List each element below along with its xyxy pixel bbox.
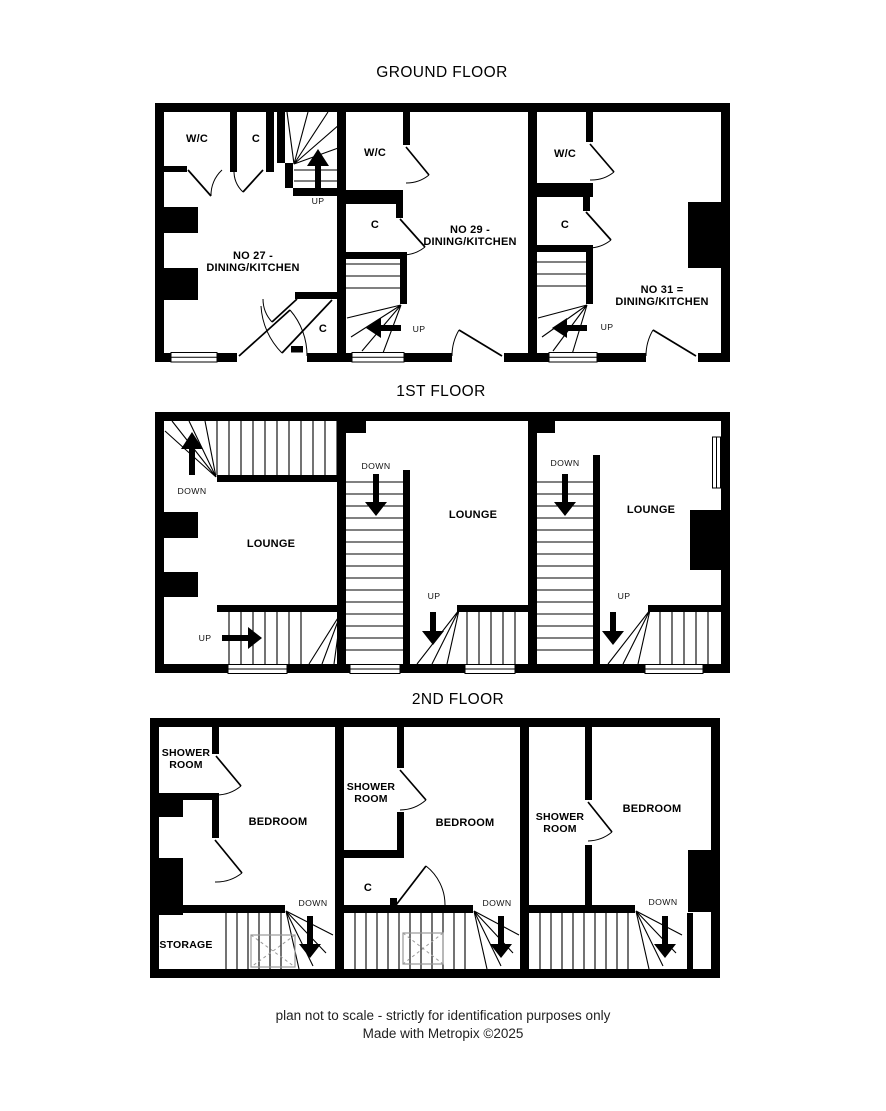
stair-label-up: UP — [601, 322, 614, 332]
room-label-shower: SHOWER — [347, 781, 396, 793]
room-label-shower-2: ROOM — [169, 759, 203, 771]
room-label-shower-2: ROOM — [543, 823, 577, 835]
stair-label-down: DOWN — [361, 461, 390, 471]
room-label-storage: STORAGE — [159, 939, 212, 951]
ground-floor-plan: W/C C UP NO 27 - DINING/KITCHEN C W/C C … — [155, 103, 730, 362]
room-label-wc: W/C — [186, 133, 208, 145]
stair-label-up: UP — [618, 591, 631, 601]
room-label-no27: NO 27 - — [233, 250, 273, 262]
disclaimer-text: plan not to scale - strictly for identif… — [276, 1008, 611, 1023]
second-unit31-stairs — [540, 911, 682, 969]
room-label-no29-2: DINING/KITCHEN — [423, 236, 516, 248]
room-label-shower: SHOWER — [536, 811, 585, 823]
room-label-no31-2: DINING/KITCHEN — [615, 296, 708, 308]
up-arrow — [307, 149, 329, 188]
stair-label-up: UP — [413, 324, 426, 334]
room-label-closet: C — [364, 882, 372, 894]
stair-label-down: DOWN — [298, 898, 327, 908]
room-label-wc: W/C — [364, 147, 386, 159]
stair-label-down: DOWN — [550, 458, 579, 468]
room-label-no31: NO 31 = — [641, 284, 684, 296]
room-label-closet: C — [319, 323, 327, 335]
ground-unit29-stairs — [346, 264, 401, 361]
second-labels: SHOWER ROOM BEDROOM STORAGE DOWN SHOWER … — [159, 747, 681, 951]
ground-unit31-stairs — [537, 262, 587, 361]
room-label-lounge: LOUNGE — [247, 538, 295, 550]
stair-label-down: DOWN — [482, 898, 511, 908]
up-arrow — [422, 612, 444, 645]
up-arrow — [602, 612, 624, 645]
credit-text: Made with Metropix ©2025 — [363, 1026, 524, 1041]
first-windows — [228, 437, 721, 674]
up-arrow — [181, 432, 203, 475]
stair-label-up: UP — [428, 591, 441, 601]
ground-floor-title: GROUND FLOOR — [376, 64, 507, 81]
room-label-lounge: LOUNGE — [627, 504, 675, 516]
room-label-bedroom: BEDROOM — [249, 816, 308, 828]
stair-label-down: DOWN — [648, 897, 677, 907]
room-label-closet: C — [561, 219, 569, 231]
second-floor-plan: SHOWER ROOM BEDROOM STORAGE DOWN SHOWER … — [150, 718, 720, 978]
up-arrow — [222, 627, 262, 649]
first-floor-plan: DOWN LOUNGE UP DOWN LOUNGE UP DOWN LOUNG… — [155, 412, 730, 674]
room-label-no29: NO 29 - — [450, 224, 490, 236]
up-arrow — [366, 318, 401, 338]
room-label-bedroom: BEDROOM — [436, 817, 495, 829]
first-labels: DOWN LOUNGE UP DOWN LOUNGE UP DOWN LOUNG… — [177, 458, 675, 643]
room-label-wc: W/C — [554, 148, 576, 160]
room-label-closet: C — [252, 133, 260, 145]
room-label-bedroom: BEDROOM — [623, 803, 682, 815]
first-unit29-stairs — [346, 474, 515, 664]
down-arrow — [365, 474, 387, 516]
first-floor-title: 1ST FLOOR — [396, 383, 485, 400]
room-label-shower: SHOWER — [162, 747, 211, 759]
ground-labels: W/C C UP NO 27 - DINING/KITCHEN C W/C C … — [186, 133, 709, 335]
floorplan-svg: GROUND FLOOR 1ST FLOOR 2ND FLOOR — [0, 0, 886, 1111]
second-unit29-stairs — [355, 911, 519, 969]
first-unit31-stairs — [537, 474, 708, 664]
room-label-closet: C — [371, 219, 379, 231]
second-floor-title: 2ND FLOOR — [412, 691, 504, 708]
down-arrow — [490, 916, 512, 958]
stair-label-up: UP — [199, 633, 212, 643]
stair-label-down: DOWN — [177, 486, 206, 496]
stair-label-up: UP — [312, 196, 325, 206]
room-label-shower-2: ROOM — [354, 793, 388, 805]
down-arrow — [299, 916, 321, 958]
room-label-no27-2: DINING/KITCHEN — [206, 262, 299, 274]
second-unit27-stairs — [226, 911, 333, 969]
second-walls — [150, 718, 720, 978]
ground-unit27-stairs — [287, 112, 341, 188]
room-label-lounge: LOUNGE — [449, 509, 497, 521]
down-arrow — [554, 474, 576, 516]
floorplan-page: GROUND FLOOR 1ST FLOOR 2ND FLOOR — [0, 0, 886, 1111]
ground-walls — [155, 103, 730, 362]
